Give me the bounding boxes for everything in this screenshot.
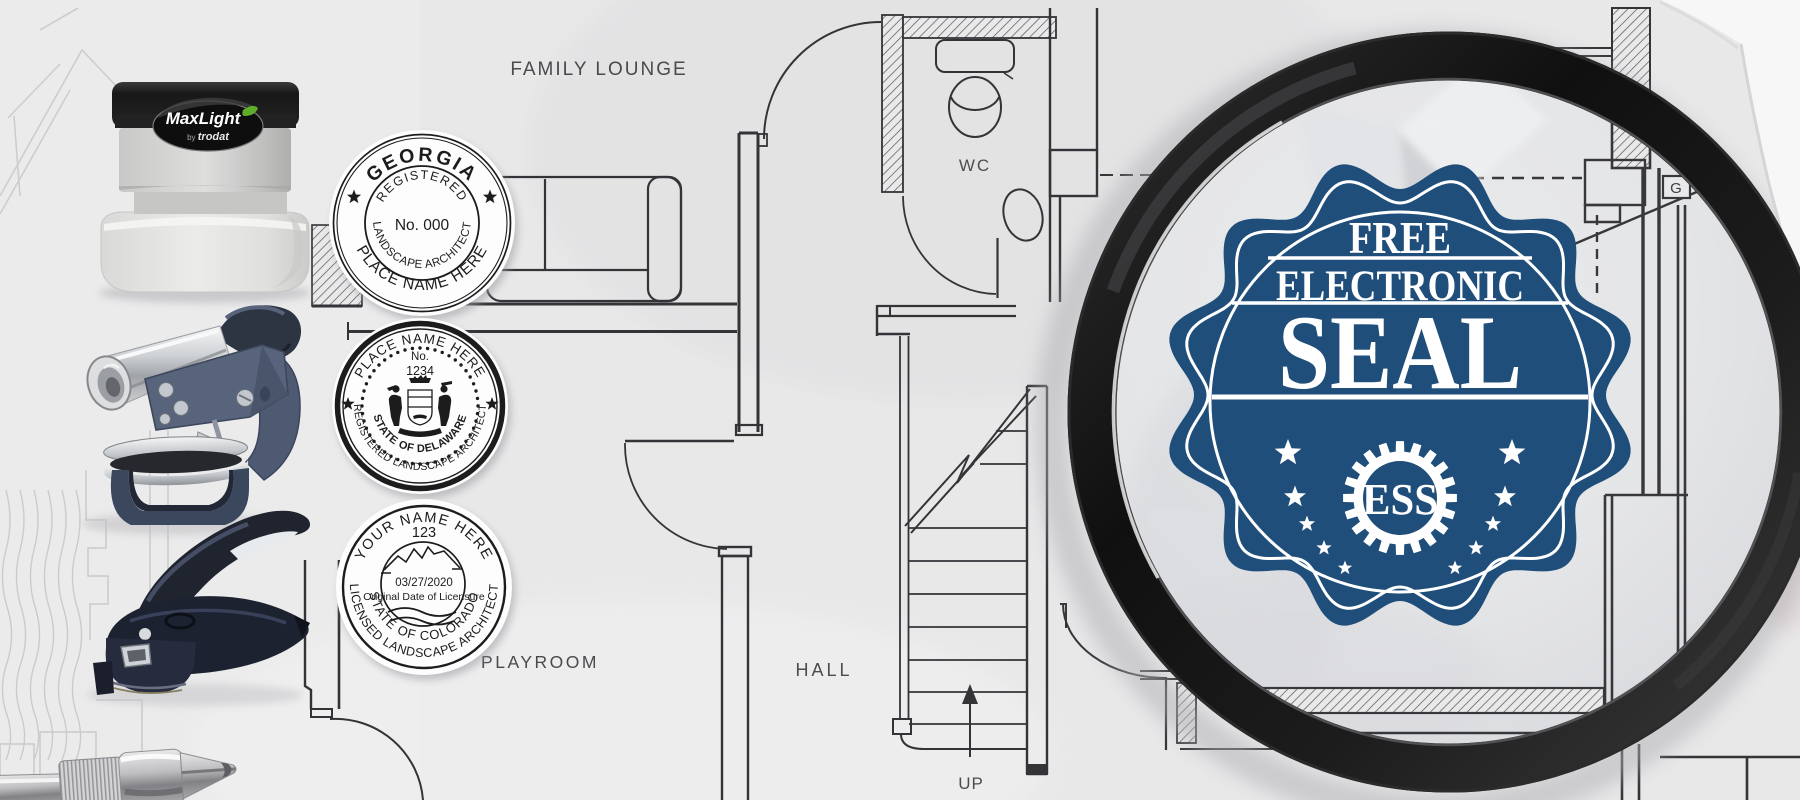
svg-text:1234: 1234 bbox=[406, 364, 434, 378]
svg-text:No.: No. bbox=[411, 351, 429, 363]
svg-text:MaxLight: MaxLight bbox=[166, 109, 242, 128]
svg-text:by trodat: by trodat bbox=[187, 131, 230, 143]
svg-text:PLAYROOM: PLAYROOM bbox=[481, 652, 599, 672]
svg-text:HALL: HALL bbox=[795, 660, 852, 680]
svg-text:SEAL: SEAL bbox=[1278, 294, 1522, 411]
svg-text:G: G bbox=[1670, 180, 1682, 197]
svg-text:FREE: FREE bbox=[1349, 213, 1451, 263]
svg-text:UP: UP bbox=[958, 774, 984, 793]
svg-text:123: 123 bbox=[412, 525, 436, 541]
svg-text:No. 000: No. 000 bbox=[395, 217, 450, 234]
svg-text:ESS: ESS bbox=[1362, 475, 1438, 524]
svg-text:03/27/2020: 03/27/2020 bbox=[395, 577, 453, 589]
svg-text:FAMILY LOUNGE: FAMILY LOUNGE bbox=[510, 59, 687, 80]
svg-text:WC: WC bbox=[959, 156, 991, 175]
